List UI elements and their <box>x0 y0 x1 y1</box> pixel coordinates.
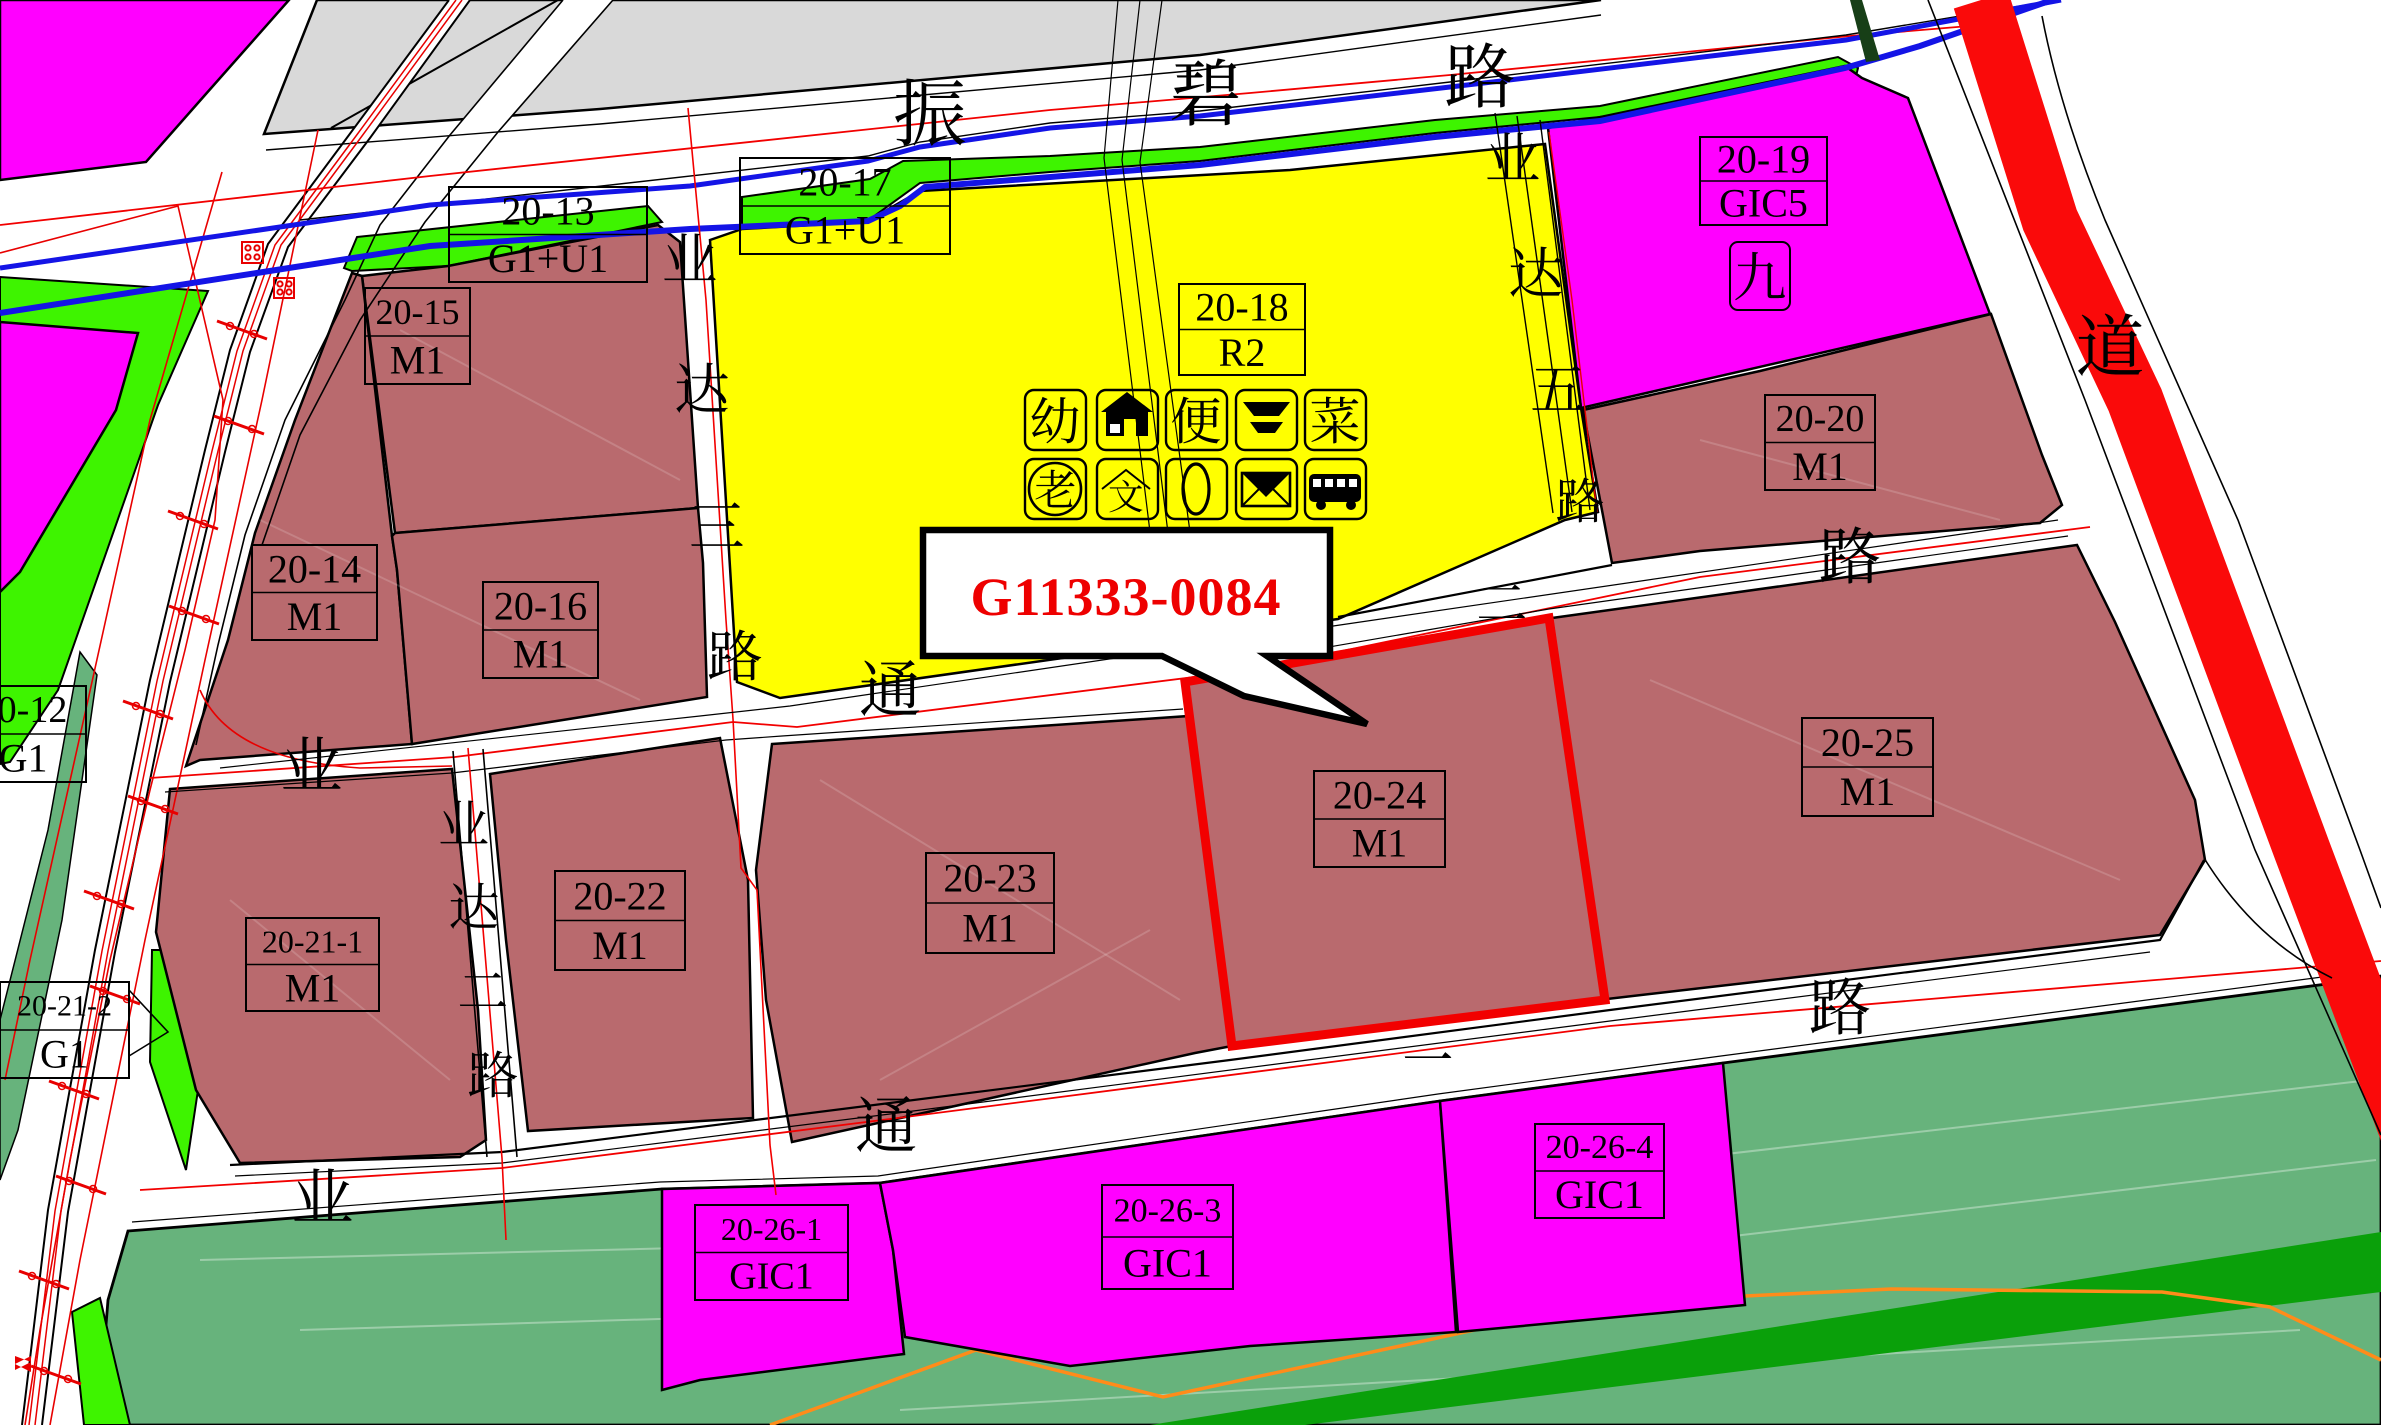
svg-text:20-18: 20-18 <box>1195 284 1288 329</box>
svg-text:20-24: 20-24 <box>1333 773 1426 818</box>
svg-text:20-25: 20-25 <box>1821 720 1914 765</box>
svg-text:M1: M1 <box>1352 821 1408 866</box>
svg-text:20-21-2: 20-21-2 <box>17 990 112 1023</box>
svg-text:M1: M1 <box>592 923 648 968</box>
svg-text:20-26-4: 20-26-4 <box>1546 1129 1654 1166</box>
svg-text:20-15: 20-15 <box>376 292 460 332</box>
svg-text:M1: M1 <box>962 906 1018 951</box>
svg-text:20-26-3: 20-26-3 <box>1114 1193 1222 1230</box>
svg-text:20-12: 20-12 <box>0 689 67 731</box>
svg-text:G1: G1 <box>0 736 47 781</box>
svg-text:R2: R2 <box>1219 330 1266 375</box>
svg-text:M1: M1 <box>390 338 446 383</box>
svg-text:M1: M1 <box>1792 444 1848 489</box>
svg-text:GIC1: GIC1 <box>1555 1172 1644 1217</box>
svg-text:20-16: 20-16 <box>494 584 587 629</box>
svg-text:M1: M1 <box>1840 769 1896 814</box>
svg-text:20-22: 20-22 <box>573 873 666 918</box>
svg-text:G1+U1: G1+U1 <box>488 236 608 281</box>
svg-text:GIC1: GIC1 <box>1123 1241 1212 1286</box>
svg-text:GIC1: GIC1 <box>729 1255 813 1297</box>
svg-text:20-26-1: 20-26-1 <box>721 1211 822 1247</box>
svg-text:20-19: 20-19 <box>1717 137 1810 182</box>
svg-text:M1: M1 <box>513 632 569 677</box>
svg-text:20-13: 20-13 <box>501 188 594 233</box>
svg-text:20-23: 20-23 <box>943 856 1036 901</box>
svg-text:G1+U1: G1+U1 <box>785 208 905 253</box>
svg-text:20-14: 20-14 <box>268 546 361 591</box>
svg-text:G11333-0084: G11333-0084 <box>970 567 1281 627</box>
svg-text:M1: M1 <box>287 594 343 639</box>
svg-text:GIC5: GIC5 <box>1719 181 1808 226</box>
svg-text:M1: M1 <box>285 965 341 1010</box>
svg-text:20-21-1: 20-21-1 <box>262 923 363 959</box>
svg-text:20-20: 20-20 <box>1776 398 1865 440</box>
svg-text:20-17: 20-17 <box>798 160 891 205</box>
svg-text:G1: G1 <box>40 1032 89 1077</box>
